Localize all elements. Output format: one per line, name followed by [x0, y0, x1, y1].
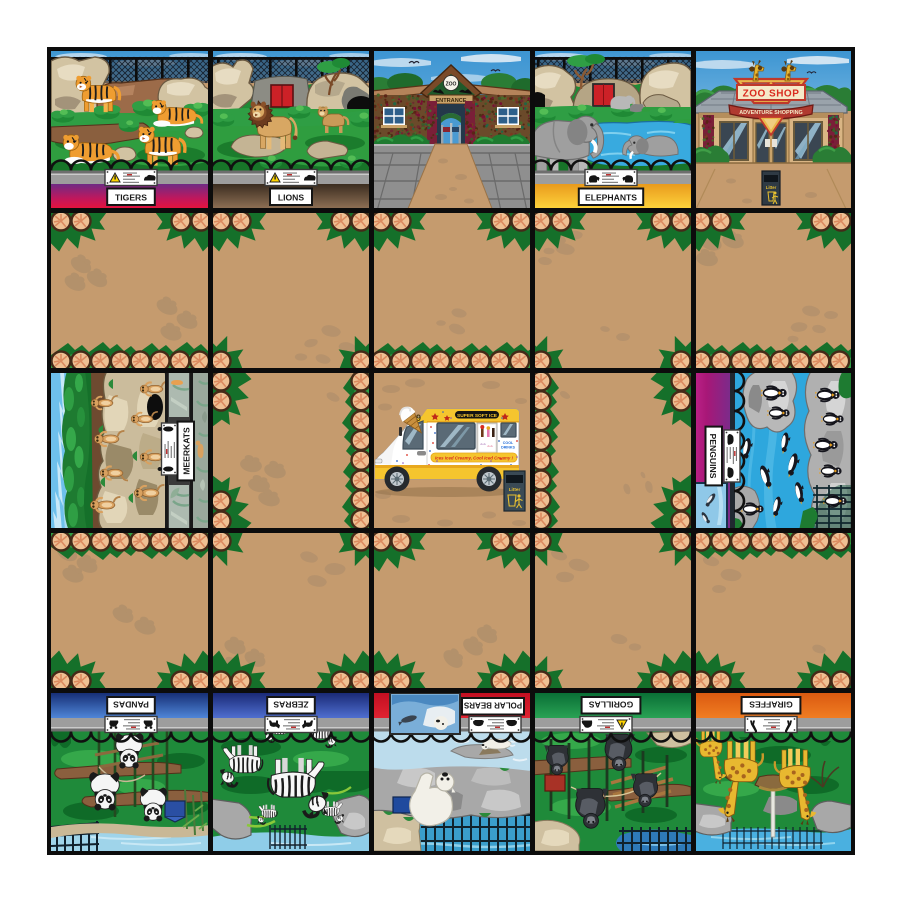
svg-text:TIGERS: TIGERS	[115, 193, 147, 203]
svg-text:ZOO: ZOO	[446, 82, 457, 88]
svg-text:Litter: Litter	[766, 185, 777, 190]
svg-text:POLAR BEARS: POLAR BEARS	[463, 701, 522, 710]
svg-text:MEERKATS: MEERKATS	[182, 427, 192, 475]
svg-text:ELEPHANTS: ELEPHANTS	[585, 193, 637, 203]
svg-text:ADVENTURE SHOPPING: ADVENTURE SHOPPING	[739, 110, 803, 116]
svg-text:ENTRANCE: ENTRANCE	[435, 98, 466, 104]
svg-text:LIONS: LIONS	[278, 193, 305, 203]
svg-text:COOL: COOL	[503, 441, 514, 445]
svg-text:ZEBRAS: ZEBRAS	[273, 700, 309, 710]
svg-text:GIRAFFES: GIRAFFES	[749, 700, 793, 710]
svg-text:ZOO SHOP: ZOO SHOP	[743, 89, 800, 100]
svg-text:SUPER SOFT ICE: SUPER SOFT ICE	[457, 413, 498, 419]
svg-text:Ices Iced Creamy, Cool Iced Cr: Ices Iced Creamy, Cool Iced Creamy !	[435, 456, 513, 461]
svg-text:PENGUINS: PENGUINS	[708, 434, 718, 479]
svg-text:GORILLAS: GORILLAS	[589, 700, 634, 710]
svg-text:Litter: Litter	[509, 487, 521, 492]
svg-text:DRINKS: DRINKS	[501, 446, 515, 450]
svg-text:PANDAS: PANDAS	[113, 700, 149, 710]
